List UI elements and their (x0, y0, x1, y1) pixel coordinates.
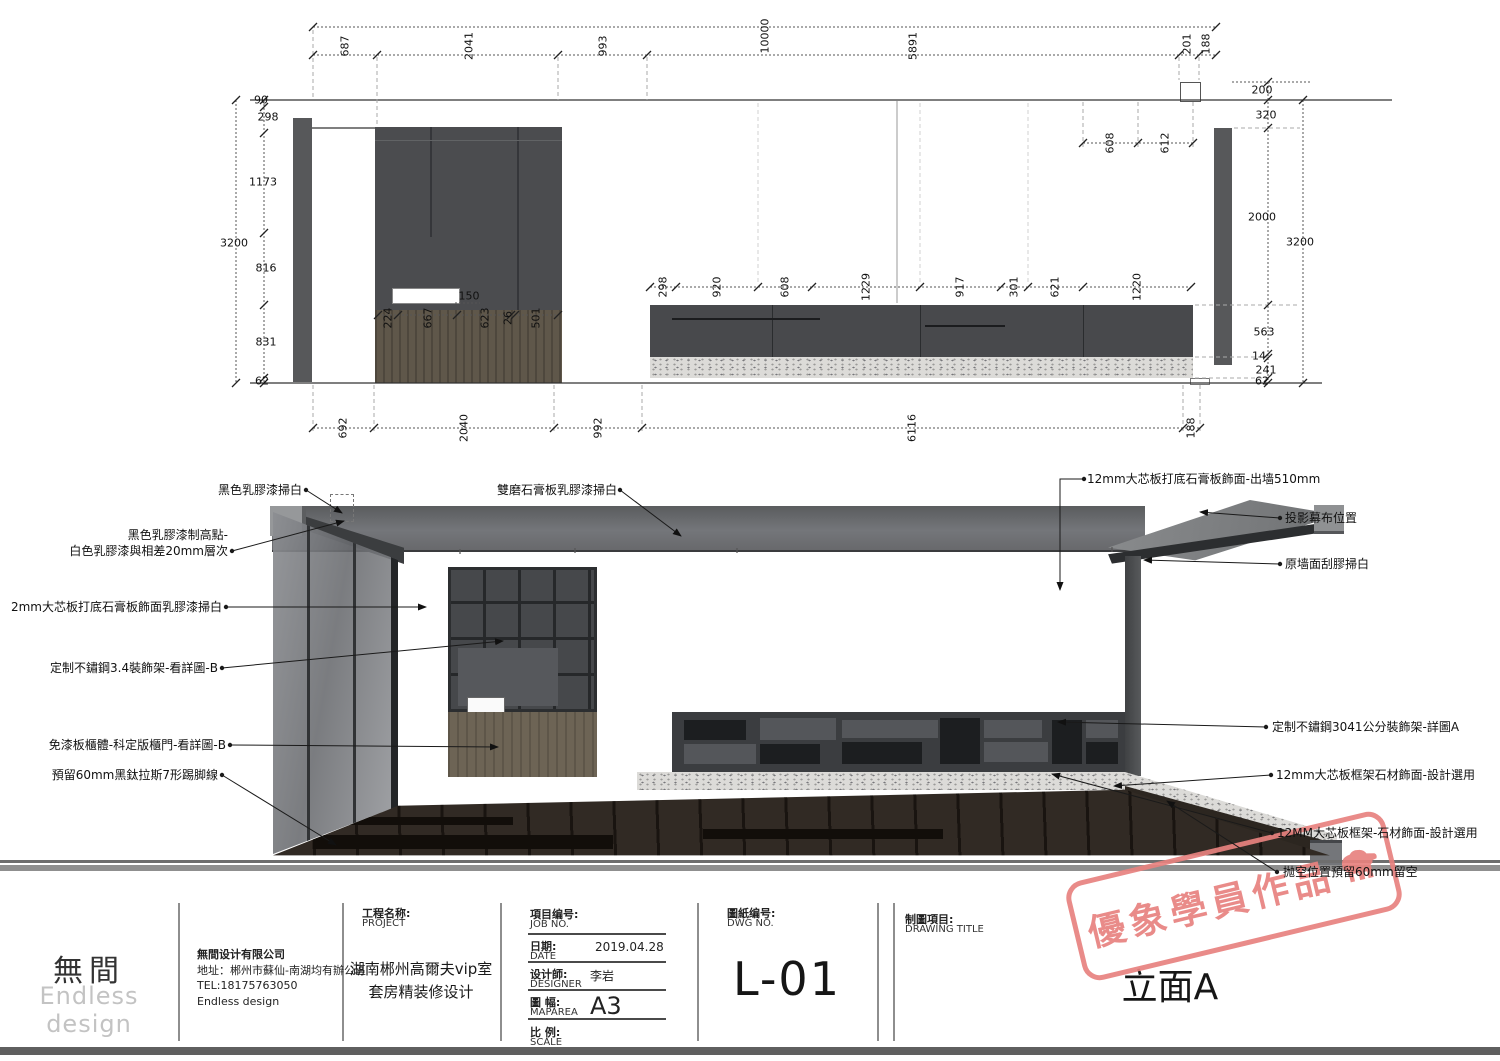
dim-label: 320 (1256, 110, 1277, 121)
callout-label: 2mm大芯板打底石膏板飾面乳膠漆掃白 (11, 600, 222, 615)
floor-step (1190, 378, 1210, 385)
dim-label: 3200 (220, 238, 248, 249)
dim-label: 2041 (464, 32, 475, 60)
detail-dashed-box (330, 494, 354, 522)
cabinet-void (684, 720, 746, 740)
callout-label: 12mm大芯板框架石材飾面-設計選用 (1276, 768, 1475, 783)
paper-size-value: A3 (590, 992, 622, 1020)
dim-label: 201 (1182, 34, 1193, 55)
logo-english: Endless design (0, 982, 178, 1038)
dim-label: 621 (1050, 277, 1061, 298)
dim-label: 993 (598, 36, 609, 57)
callout-label: 黑色乳膠漆制高點- (128, 528, 228, 543)
bottom-border-bar (0, 1047, 1500, 1055)
project-name: 湖南郴州高爾夫vip室 套房精装修设计 (344, 958, 498, 1004)
dim-label: 200 (1252, 85, 1273, 96)
callout-label: 預留60mm黑鈦拉斯7形踢脚線 (52, 768, 218, 783)
cabinet-shelf-line (672, 318, 820, 320)
stone-plinth (637, 772, 1125, 790)
dim-label: 1220 (1132, 273, 1143, 301)
dim-label: 3200 (1286, 237, 1314, 248)
dim-label: 563 (1254, 327, 1275, 338)
cabinet-face (1086, 720, 1118, 738)
cabinet-face (842, 720, 938, 738)
cabinet-shelf-line2 (925, 325, 1005, 327)
dim-label: 14 (1252, 351, 1266, 362)
dim-label: 831 (256, 337, 277, 348)
company-tel: TEL:18175763050 (197, 978, 366, 994)
dwgno-label-en: DWG NO. (727, 918, 774, 929)
elephant-icon (1335, 843, 1384, 888)
right-wall-edge (1125, 556, 1141, 776)
glass-mullion (307, 512, 310, 854)
tb-row-sep (528, 989, 666, 991)
dim-label: 992 (593, 418, 604, 439)
dim-label: 1173 (249, 177, 277, 188)
project-name-line2: 套房精装修设计 (344, 981, 498, 1004)
dim-label: 2040 (459, 414, 470, 442)
wood-base-cabinet (448, 712, 597, 777)
wood-cabinet (375, 310, 562, 383)
cabinet-void (760, 744, 820, 764)
right-wall-column (1214, 128, 1232, 365)
callout-label: 白色乳膠漆與相差20mm層次 (69, 544, 228, 559)
tb-divider (893, 903, 895, 1041)
counter-niche (392, 288, 460, 304)
stone-base (650, 357, 1193, 378)
tb-row-sep (528, 1018, 666, 1020)
dim-label: 5891 (908, 32, 919, 60)
jobno-label-en: JOB NO. (530, 919, 569, 930)
callout-label: 黑色乳膠漆掃白 (218, 483, 302, 498)
callout-label: 免漆板櫃體-科定版櫃門-看詳圖-B (49, 738, 226, 753)
dim-label: 301 (1009, 277, 1020, 298)
callout-label: 定制不鏽鋼3041公分裝飾架-詳圖A (1272, 720, 1459, 735)
tb-divider (178, 903, 180, 1041)
map-label-en: MAPAREA (530, 1007, 578, 1018)
dim-label: 917 (955, 277, 966, 298)
wardrobe-seam (517, 127, 519, 310)
project-name-line1: 湖南郴州高爾夫vip室 (344, 958, 498, 981)
dim-label: 241 (1256, 365, 1277, 376)
cabinet-face (984, 720, 1042, 738)
wardrobe-seam2 (430, 127, 432, 237)
dim-label: 687 (340, 36, 351, 57)
floor-rug2 (703, 829, 943, 839)
cad-sheet: 1000068720419935891201188320090298117381… (0, 0, 1500, 1061)
cabinet-void (1052, 720, 1082, 764)
cabinet-face (984, 742, 1048, 762)
callout-label: 原墙面刮膠掃白 (1285, 557, 1369, 572)
left-wall-column (293, 118, 312, 382)
tb-row-sep (528, 961, 666, 963)
dim-label: 298 (658, 277, 669, 298)
floor-rug (313, 835, 613, 849)
callout-label: 定制不鏽鋼3.4裝飾架-看詳圖-B (50, 661, 218, 676)
dim-label: 62 (255, 376, 269, 387)
soffit-box (1180, 82, 1201, 102)
glass-mullion2 (353, 512, 356, 854)
callout-label: 雙磨石膏板乳膠漆掃白 (497, 483, 617, 498)
dim-label: 816 (256, 263, 277, 274)
callout-label: 12mm大芯板打底石膏板飾面-出墙510mm (1087, 472, 1320, 487)
dim-label: 10000 (760, 19, 771, 54)
cabinet-seam2 (920, 305, 921, 357)
dtitle-label-en: DRAWING TITLE (905, 924, 984, 935)
cabinet-face (760, 718, 836, 740)
cabinet-void (842, 742, 922, 764)
dim-label: 188 (1186, 418, 1197, 439)
cabinet-face (684, 744, 756, 764)
dim-label: 6116 (907, 414, 918, 442)
dim-label: 2000 (1248, 212, 1276, 223)
cabinet-void (1086, 742, 1118, 764)
project-label-en: PROJECT (362, 918, 405, 929)
cabinet-seam3 (1083, 305, 1084, 357)
ceiling-slab (272, 506, 1145, 552)
tb-divider (877, 903, 879, 1041)
dim-label: 188 (1201, 34, 1212, 55)
designer-value: 李岩 (590, 967, 614, 984)
dim-label: 1229 (861, 273, 872, 301)
media-cabinet (672, 712, 1125, 772)
scale-label-en: SCALE (530, 1037, 562, 1048)
dim-label: 920 (712, 277, 723, 298)
drawing-title: 立面A (1020, 958, 1320, 1010)
tb-divider (500, 903, 502, 1041)
tb-row-sep (528, 933, 666, 935)
dim-label: 612 (1160, 133, 1171, 154)
company-address: 地址：郴州市蘇仙-南湖均有辦公區 (197, 963, 366, 979)
tv-cabinet (650, 305, 1193, 357)
drawing-number: L-01 (697, 952, 877, 1006)
wardrobe-line (375, 140, 562, 141)
dim-label: 692 (338, 418, 349, 439)
company-en: Endless design (197, 994, 366, 1010)
right-ceiling-block (1314, 505, 1344, 534)
dim-label: 62 (1255, 376, 1269, 387)
glass-frame (391, 512, 398, 854)
dim-label: 608 (1105, 133, 1116, 154)
glass-wall (273, 512, 398, 854)
company-name: 無間设计有限公司 (197, 947, 366, 963)
cabinet-void (940, 718, 980, 764)
date-value: 2019.04.28 (595, 940, 664, 954)
dim-label: 90 (254, 95, 268, 106)
cabinet-seam (772, 305, 773, 357)
company-info: 無間设计有限公司 地址：郴州市蘇仙-南湖均有辦公區 TEL:1817576305… (197, 947, 366, 1009)
dim-label: 298 (258, 112, 279, 123)
dim-label: 608 (780, 277, 791, 298)
wardrobe-panel (375, 127, 562, 310)
